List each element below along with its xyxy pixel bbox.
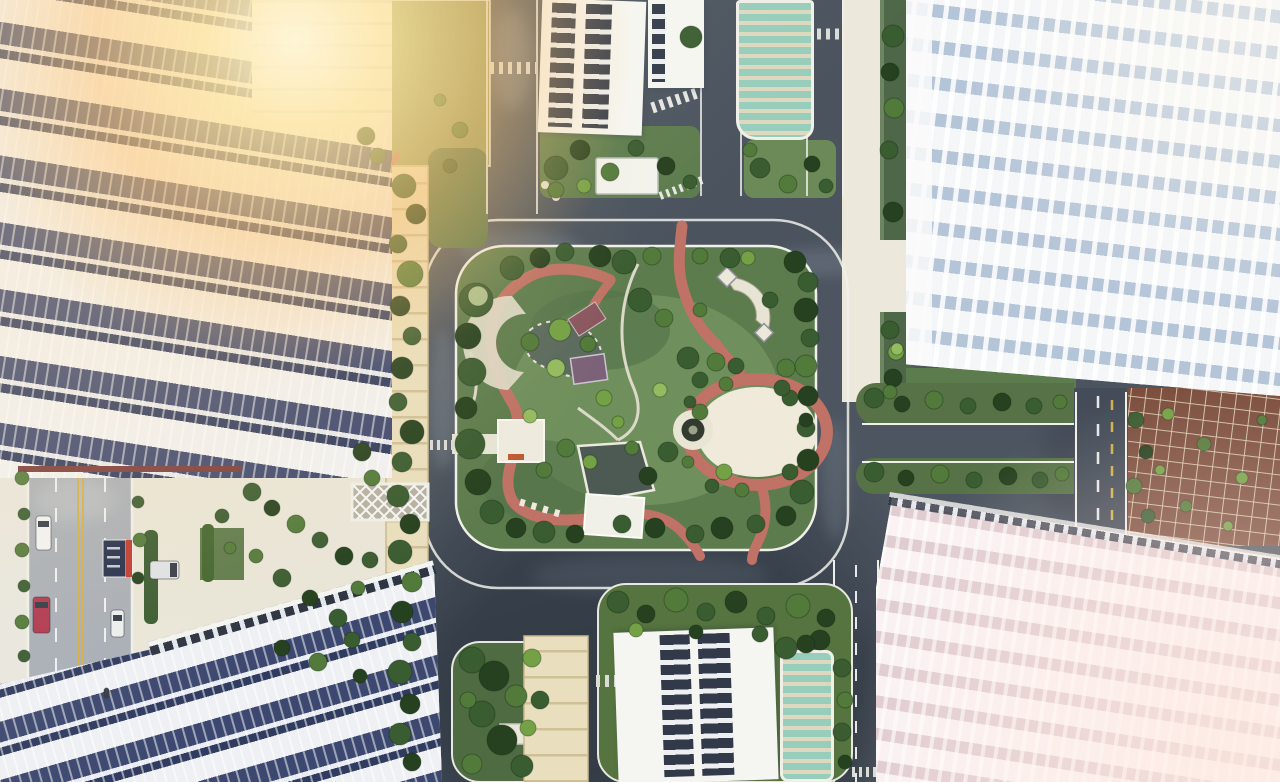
bush	[677, 347, 699, 369]
bush	[692, 248, 708, 264]
bush	[309, 653, 327, 671]
bush	[403, 327, 421, 345]
bush	[312, 532, 328, 548]
bush	[882, 25, 904, 47]
bush	[707, 353, 725, 371]
bush	[583, 455, 597, 469]
bush	[400, 694, 420, 714]
bush	[511, 755, 533, 777]
bush	[577, 179, 591, 193]
bush	[931, 465, 949, 483]
bush	[462, 754, 482, 774]
bush	[880, 141, 898, 159]
vegetation-layer	[0, 0, 1280, 782]
bush	[523, 409, 537, 423]
bush	[993, 393, 1011, 411]
bush	[302, 590, 318, 606]
bush	[960, 398, 976, 414]
bush	[794, 298, 818, 322]
bush	[391, 601, 413, 623]
sign-text-line	[107, 556, 120, 559]
bush	[728, 358, 744, 374]
bush	[273, 569, 291, 587]
bush	[397, 261, 423, 287]
bush	[547, 359, 565, 377]
bush	[643, 247, 661, 265]
bush	[530, 248, 550, 268]
bush	[898, 470, 914, 486]
bush	[653, 383, 667, 397]
bush	[1139, 445, 1153, 459]
bush	[468, 286, 488, 306]
bush	[15, 543, 29, 557]
bush	[353, 443, 371, 461]
bush	[711, 517, 733, 539]
bush	[18, 580, 30, 592]
bush	[777, 359, 795, 377]
bush	[391, 357, 413, 379]
bush	[790, 480, 814, 504]
bush	[658, 442, 678, 462]
bush	[884, 369, 902, 387]
bush	[628, 140, 644, 156]
bush	[362, 552, 378, 568]
bush	[389, 393, 407, 411]
bush	[682, 456, 694, 468]
bush	[1236, 472, 1248, 484]
bush	[705, 479, 719, 493]
bush	[390, 296, 410, 316]
bush	[506, 518, 526, 538]
bush	[747, 515, 765, 533]
bush	[370, 148, 386, 164]
bush	[351, 581, 365, 595]
bush	[804, 156, 820, 172]
bush	[762, 292, 778, 308]
bush	[686, 525, 704, 543]
aerial-photo-residential-complex	[0, 0, 1280, 782]
bush	[1180, 500, 1192, 512]
bush	[389, 235, 407, 253]
bush	[612, 250, 636, 274]
bush	[752, 626, 768, 642]
bush	[683, 175, 697, 189]
bush	[612, 416, 624, 428]
bush	[797, 635, 815, 653]
bush	[819, 179, 833, 193]
bush	[613, 515, 631, 533]
signage	[103, 540, 132, 577]
bush	[549, 319, 571, 341]
bush	[596, 390, 612, 406]
bush	[741, 251, 755, 265]
bush	[629, 623, 643, 637]
bush	[750, 158, 770, 178]
bush	[664, 588, 688, 612]
bush	[580, 336, 596, 352]
bush	[389, 723, 411, 745]
bush	[881, 321, 899, 339]
bush	[329, 609, 347, 627]
bush	[460, 692, 476, 708]
bush	[1162, 408, 1174, 420]
bush	[133, 533, 147, 547]
bush	[400, 420, 424, 444]
bush	[452, 122, 468, 138]
bush	[264, 500, 280, 516]
bush	[1126, 478, 1142, 494]
bush	[881, 63, 899, 81]
bush	[455, 397, 477, 419]
bush	[833, 659, 851, 677]
bush	[1026, 398, 1042, 414]
bush	[443, 159, 457, 173]
sign-text-line	[107, 547, 120, 550]
bush	[479, 661, 509, 691]
bush	[798, 272, 818, 292]
motorbike	[104, 688, 109, 699]
bush	[799, 413, 813, 427]
bush	[1257, 415, 1267, 425]
bush	[774, 380, 790, 396]
bush	[533, 521, 555, 543]
bush	[628, 288, 652, 312]
bush	[406, 204, 426, 224]
bush	[601, 163, 619, 181]
bush	[434, 94, 446, 106]
bush	[817, 609, 835, 627]
bush	[784, 251, 806, 273]
bush	[775, 637, 797, 659]
bush	[18, 508, 30, 520]
bush	[335, 547, 353, 565]
bush	[243, 483, 261, 501]
bush	[556, 243, 574, 261]
bush	[837, 692, 853, 708]
bush	[353, 669, 367, 683]
bush	[388, 660, 412, 684]
bush	[838, 755, 852, 769]
bush	[925, 391, 943, 409]
bush	[1128, 412, 1144, 428]
bush	[388, 540, 412, 564]
bush	[15, 471, 29, 485]
bush	[776, 506, 796, 526]
bush	[215, 509, 229, 523]
bush	[743, 143, 757, 157]
sign-text-line	[107, 565, 120, 568]
bush	[657, 157, 675, 175]
bush	[536, 462, 552, 478]
bush	[719, 377, 733, 391]
bush	[589, 245, 611, 267]
bush	[607, 591, 629, 613]
bush	[531, 691, 549, 709]
bush	[894, 396, 910, 412]
bush	[274, 640, 290, 656]
bush	[387, 485, 409, 507]
bush	[287, 515, 305, 533]
bush	[798, 386, 818, 406]
bush	[402, 572, 422, 592]
bush	[520, 720, 536, 736]
bush	[725, 591, 747, 613]
bush	[566, 525, 584, 543]
bush	[1155, 465, 1165, 475]
bush	[344, 632, 360, 648]
bush	[864, 462, 884, 482]
bush	[625, 441, 639, 455]
white-car-2	[111, 610, 124, 637]
bush	[801, 329, 819, 347]
white-car	[36, 516, 51, 550]
bush	[684, 396, 696, 408]
bush	[548, 182, 564, 198]
bush	[15, 615, 29, 629]
bush	[357, 127, 375, 145]
bush	[883, 202, 903, 222]
bush	[786, 594, 810, 618]
bush	[655, 309, 673, 327]
bush	[697, 603, 715, 621]
bush	[455, 323, 481, 349]
bush	[487, 725, 517, 755]
red-car	[33, 597, 50, 633]
bush	[392, 174, 416, 198]
bush	[523, 649, 541, 667]
bush	[884, 98, 904, 118]
bush	[465, 469, 491, 495]
bush	[480, 500, 504, 524]
bush	[249, 549, 263, 563]
bush	[833, 723, 851, 741]
bush	[18, 650, 30, 662]
bush	[757, 607, 775, 625]
bush	[782, 464, 798, 480]
bush	[224, 542, 236, 554]
bush	[735, 483, 749, 497]
bush	[1032, 472, 1048, 488]
bush	[557, 439, 575, 457]
bush	[795, 355, 817, 377]
bush	[720, 248, 740, 268]
bush	[544, 156, 568, 180]
bush	[1141, 509, 1155, 523]
bush	[403, 633, 421, 651]
bush	[645, 518, 665, 538]
bush	[392, 452, 412, 472]
bush	[693, 303, 707, 317]
bush	[999, 467, 1017, 485]
bush	[639, 467, 657, 485]
bush	[1223, 521, 1233, 531]
street-sign-stripe	[126, 540, 132, 577]
bush	[364, 470, 380, 486]
vegetation	[15, 25, 1267, 777]
bush	[966, 472, 982, 488]
bush	[891, 343, 903, 355]
bush	[689, 625, 703, 639]
bush	[1055, 467, 1069, 481]
bush	[883, 385, 897, 399]
bush	[132, 572, 144, 584]
bush	[570, 140, 590, 160]
bush	[680, 26, 702, 48]
bush	[521, 333, 539, 351]
bush	[797, 449, 819, 471]
bush	[637, 605, 655, 623]
bush	[400, 514, 420, 534]
bush	[403, 753, 421, 771]
bush	[505, 685, 527, 707]
bush	[864, 388, 884, 408]
bush	[779, 175, 797, 193]
bush	[455, 429, 485, 459]
bush	[1053, 395, 1067, 409]
bush	[132, 496, 144, 508]
parked-van	[150, 561, 179, 579]
bush	[458, 358, 486, 386]
bush	[716, 464, 732, 480]
bush	[692, 372, 708, 388]
bush	[1197, 437, 1211, 451]
bush	[500, 256, 524, 280]
